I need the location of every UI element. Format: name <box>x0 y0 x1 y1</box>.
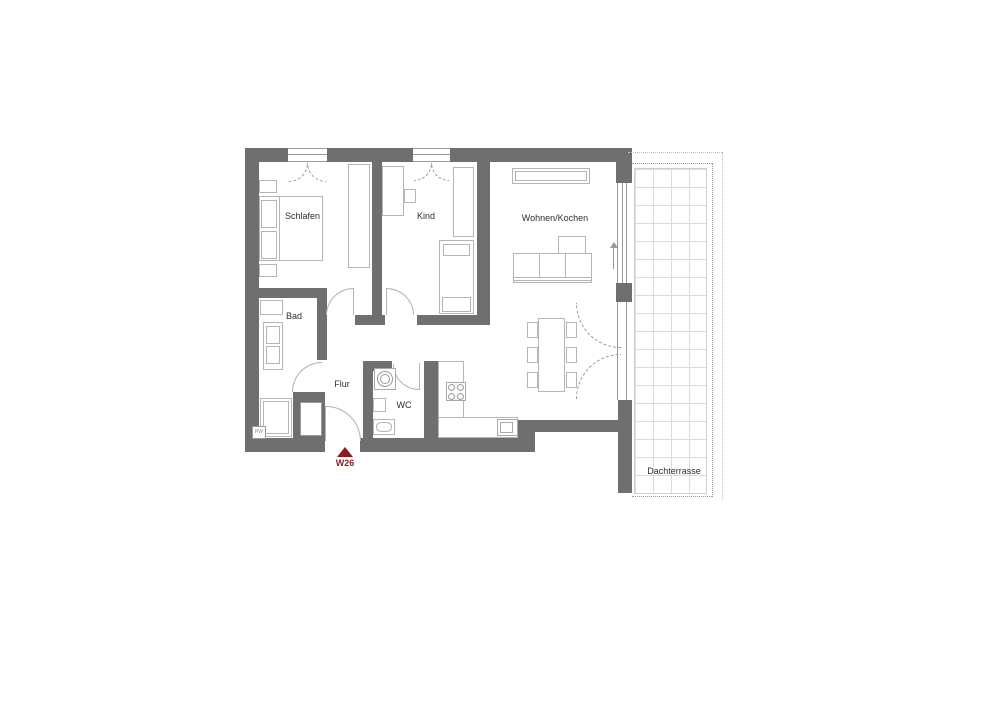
door-schlafen-leaf <box>353 288 354 315</box>
cooktop-burner-3 <box>448 393 455 400</box>
room-label-wc: WC <box>384 399 424 411</box>
room-label-kind: Kind <box>400 210 452 222</box>
wall-right-mid <box>616 283 632 302</box>
terrace-door-swing-upper <box>576 303 621 348</box>
dining-chair-right-2 <box>566 347 577 363</box>
sofa-chaise <box>558 236 586 254</box>
dining-chair-left-1 <box>527 322 538 338</box>
terrace-door-swing-lower <box>576 354 621 399</box>
room-label-wohnen-kochen: Wohnen/Kochen <box>505 212 605 224</box>
bed-kind-pillow <box>443 244 470 256</box>
wc-washing-machine-drum-inner <box>380 374 390 384</box>
boundary-line-right <box>722 152 723 500</box>
desk-kind <box>382 166 404 216</box>
wall-right-lower <box>618 400 632 493</box>
entry-door-leaf <box>325 406 326 441</box>
window-direction-arrow-line <box>613 248 614 269</box>
wall-schlafen-kind <box>372 162 382 325</box>
sofa-back-line-2 <box>513 280 592 281</box>
cooktop-burner-1 <box>448 384 455 391</box>
window-direction-arrow-head <box>610 242 618 248</box>
washer-column-box-2 <box>266 346 280 364</box>
window-living-frame-line <box>622 183 623 283</box>
wall-wc-east <box>424 361 438 438</box>
door-wc-swing <box>393 364 419 390</box>
terrace-railing-bottom <box>632 496 712 497</box>
wall-right-upper <box>616 148 632 183</box>
sofa-cushion-divider-2 <box>565 253 566 277</box>
sofa-seat <box>513 253 592 283</box>
window-kind-frame-line <box>413 154 450 155</box>
wall-bad-north <box>259 288 317 298</box>
floor-plan: Schlafen Kind Wohnen/Kochen Bad Flur WC … <box>0 0 1000 707</box>
door-kind-swing <box>386 288 414 315</box>
entry-door-swing <box>326 406 361 441</box>
shower-inner <box>263 401 289 434</box>
door-kind-leaf <box>386 288 387 315</box>
washer-column-box-1 <box>266 326 280 344</box>
wall-bottom-left <box>245 438 535 452</box>
unit-label: W26 <box>320 457 370 469</box>
unit-entry-arrow <box>337 447 353 457</box>
nightstand-south <box>259 264 277 277</box>
room-label-flur: Flur <box>317 378 367 390</box>
room-label-schlafen: Schlafen <box>270 210 335 222</box>
dining-chair-right-3 <box>566 372 577 388</box>
room-label-dachterrasse: Dachterrasse <box>624 465 724 477</box>
dining-chair-left-3 <box>527 372 538 388</box>
kitchen-sink-basin <box>500 422 513 433</box>
wall-kind-wohnen <box>477 162 490 325</box>
wall-flur-north-a <box>355 315 385 325</box>
wardrobe-schlafen <box>348 164 370 268</box>
wall-tag: PW <box>252 426 266 439</box>
bed-pillow-2 <box>261 231 277 259</box>
bed-kind-foot-box <box>442 297 471 312</box>
dining-chair-left-2 <box>527 347 538 363</box>
terrace-railing-top <box>632 163 712 164</box>
wall-bottom-step <box>518 420 535 438</box>
desk-chair-kind <box>404 189 416 203</box>
window-kind-casement-right <box>431 163 449 181</box>
terrace-tile-grid <box>634 168 707 494</box>
window-kind <box>413 148 450 162</box>
wc-toilet-bowl <box>376 422 392 432</box>
wall-bad-east <box>317 288 327 360</box>
window-schlafen-frame-line <box>288 154 327 155</box>
dining-chair-right-1 <box>566 322 577 338</box>
boundary-line-top <box>628 152 722 153</box>
sofa-cushion-divider-1 <box>539 253 540 277</box>
shelf-kind <box>453 167 474 237</box>
nightstand-north <box>259 180 277 193</box>
room-label-bad: Bad <box>274 310 314 322</box>
cooktop-burner-2 <box>457 384 464 391</box>
window-schlafen <box>288 148 327 162</box>
sideboard-inner <box>515 171 587 181</box>
sofa-back-line-1 <box>513 277 592 278</box>
window-schlafen-casement-left <box>289 163 308 182</box>
wall-wc-west <box>363 361 373 438</box>
terrace-railing-right <box>712 163 713 497</box>
window-kind-casement-left <box>414 163 432 181</box>
dining-table <box>538 318 565 392</box>
bed-blanket-line <box>279 197 280 260</box>
wall-left <box>245 148 259 452</box>
cooktop-burner-4 <box>457 393 464 400</box>
door-wc-leaf <box>419 363 420 390</box>
duct-shaft <box>300 402 322 436</box>
window-schlafen-casement-right <box>307 163 326 182</box>
door-schlafen-swing <box>326 288 354 315</box>
